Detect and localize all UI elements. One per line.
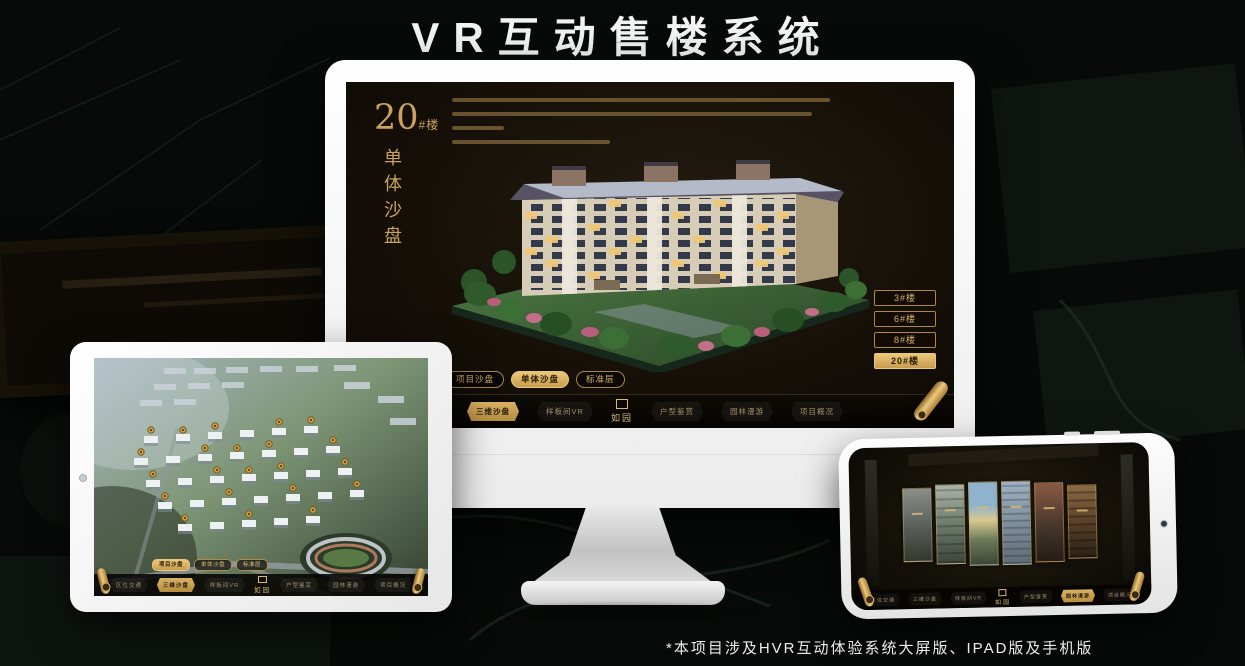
nav-item-garden-tour[interactable]: 园林漫游 bbox=[721, 402, 773, 421]
phone-nav-garden-tour[interactable]: 园林漫游 bbox=[1061, 589, 1095, 603]
floor-button-group: 3#楼 6#楼 8#楼 20#楼 bbox=[874, 290, 936, 374]
phone-logo-text: 如园 bbox=[995, 596, 1011, 605]
floor-button-8[interactable]: 8#楼 bbox=[874, 332, 936, 348]
phone-nav-showroom-vr[interactable]: 样板间VR bbox=[950, 591, 987, 605]
tablet-camera-icon bbox=[79, 474, 87, 482]
tablet-mockup: 项目沙盘 单体沙盘 标准层 区位交通 三维沙盘 样板间VR 如园 户型鉴赏 园林… bbox=[70, 342, 452, 612]
description-line bbox=[452, 112, 812, 116]
nav-item-3d-sandtable[interactable]: 三维沙盘 bbox=[467, 402, 519, 421]
tab-standard-floor[interactable]: 标准层 bbox=[576, 371, 625, 388]
tablet-tab-standard-floor[interactable]: 标准层 bbox=[236, 559, 268, 571]
tablet-nav-location[interactable]: 区位交通 bbox=[110, 578, 148, 592]
tablet-nav-project-overview[interactable]: 项目概况 bbox=[374, 578, 412, 592]
phone-app-logo: 如园 bbox=[995, 588, 1011, 605]
interior-doorframe-left bbox=[865, 460, 880, 586]
tablet-nav-3d-sandtable[interactable]: 三维沙盘 bbox=[157, 578, 195, 592]
tablet-tab-single-sandtable[interactable]: 单体沙盘 bbox=[194, 559, 232, 571]
tablet-app-logo: 如园 bbox=[254, 576, 271, 594]
phone-bottom-nav: 区位交通 三维沙盘 样板间VR 如园 户型鉴赏 园林漫游 项目概况 bbox=[851, 584, 1151, 610]
tablet-logo-seal-icon bbox=[258, 576, 267, 583]
block-subtitle-vertical: 单体沙盘 bbox=[379, 148, 405, 288]
block-number: 20 bbox=[374, 98, 419, 138]
logo-seal-icon bbox=[616, 399, 628, 409]
tablet-tab-project-sandtable[interactable]: 项目沙盘 bbox=[152, 559, 190, 571]
footnote-text: *本项目涉及HVR互动体验系统大屏版、IPAD版及手机版 bbox=[666, 637, 1093, 658]
page-title: VR互动售楼系统 bbox=[0, 4, 1245, 65]
logo-text: 如园 bbox=[611, 411, 633, 424]
floor-button-6[interactable]: 6#楼 bbox=[874, 311, 936, 327]
tablet-nav-unit-plans[interactable]: 户型鉴赏 bbox=[280, 578, 318, 592]
gallery-panel-courtyard[interactable] bbox=[902, 488, 933, 563]
plaque-engraving bbox=[62, 267, 322, 289]
plaque-engraving-small bbox=[144, 293, 324, 307]
tab-single-sandtable[interactable]: 单体沙盘 bbox=[511, 371, 569, 388]
nav-item-showroom-vr[interactable]: 样板间VR bbox=[537, 402, 593, 421]
phone-mockup: 区位交通 三维沙盘 样板间VR 如园 户型鉴赏 园林漫游 项目概况 bbox=[838, 433, 1178, 620]
phone-screen: 区位交通 三维沙盘 样板间VR 如园 户型鉴赏 园林漫游 项目概况 bbox=[848, 442, 1151, 610]
gallery-panel-facade[interactable] bbox=[1001, 481, 1032, 566]
phone-nav-unit-plans[interactable]: 户型鉴赏 bbox=[1019, 590, 1053, 604]
phone-volume-button bbox=[1094, 431, 1120, 436]
gallery-panel-landscape[interactable] bbox=[968, 481, 999, 566]
app-logo: 如园 bbox=[611, 399, 633, 424]
gallery-panel-study[interactable] bbox=[1067, 484, 1098, 559]
tablet-screen: 项目沙盘 单体沙盘 标准层 区位交通 三维沙盘 样板间VR 如园 户型鉴赏 园林… bbox=[94, 358, 428, 596]
building-block-title: 20#楼 bbox=[374, 98, 439, 138]
tablet-bottom-nav: 区位交通 三维沙盘 样板间VR 如园 户型鉴赏 园林漫游 项目概况 bbox=[94, 574, 428, 596]
interior-doorframe-right bbox=[1121, 454, 1136, 580]
gallery-panel-autumn[interactable] bbox=[1034, 482, 1065, 563]
panorama-gallery bbox=[902, 479, 1098, 567]
nav-item-project-overview[interactable]: 项目概况 bbox=[791, 402, 843, 421]
monitor-shadow bbox=[463, 601, 783, 625]
poster-canvas: VR互动售楼系统 20#楼 单体沙盘 bbox=[0, 0, 1245, 666]
nav-item-unit-plans[interactable]: 户型鉴赏 bbox=[651, 402, 703, 421]
tablet-logo-text: 如园 bbox=[254, 584, 271, 594]
phone-camera-icon bbox=[1160, 520, 1168, 528]
interior-beam-backdrop bbox=[908, 444, 1098, 467]
tablet-view-tab-group: 项目沙盘 单体沙盘 标准层 bbox=[152, 559, 268, 571]
floor-button-20-active[interactable]: 20#楼 bbox=[874, 353, 936, 369]
phone-logo-seal-icon bbox=[999, 589, 1007, 596]
tab-project-sandtable[interactable]: 项目沙盘 bbox=[446, 371, 504, 388]
description-line bbox=[452, 126, 504, 130]
floor-button-3[interactable]: 3#楼 bbox=[874, 290, 936, 306]
phone-nav-3d-sandtable[interactable]: 三维沙盘 bbox=[908, 592, 942, 606]
block-number-suffix: #楼 bbox=[419, 118, 440, 132]
tablet-nav-garden-tour[interactable]: 园林漫游 bbox=[327, 578, 365, 592]
tablet-nav-showroom-vr[interactable]: 样板间VR bbox=[204, 578, 245, 592]
gallery-panel-interior[interactable] bbox=[935, 484, 966, 565]
phone-power-button bbox=[1064, 431, 1080, 435]
building-3d-render bbox=[444, 142, 874, 377]
description-line bbox=[452, 98, 830, 102]
view-tab-group: 项目沙盘 单体沙盘 标准层 bbox=[446, 371, 625, 388]
